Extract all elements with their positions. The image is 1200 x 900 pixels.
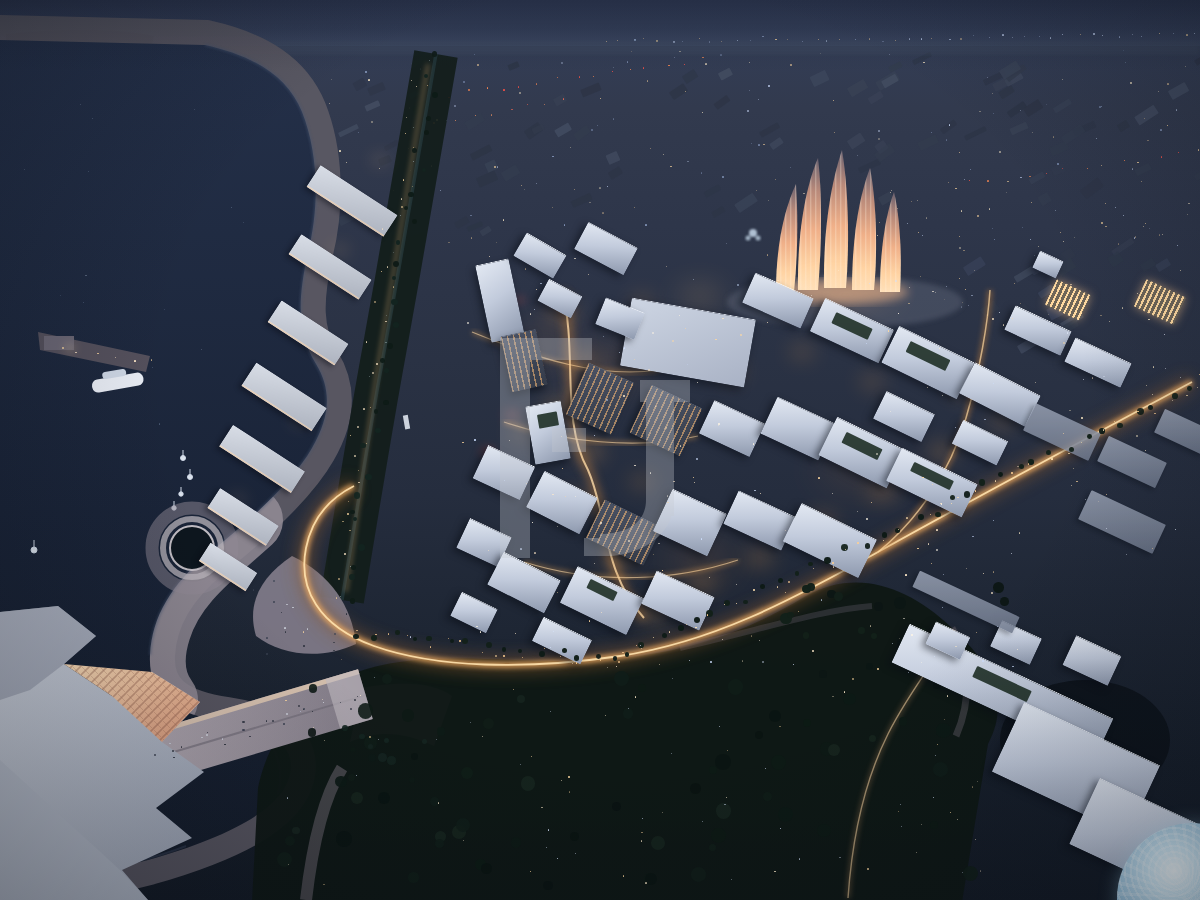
promenade-light xyxy=(354,455,356,457)
park-light xyxy=(300,711,301,712)
district-window-light xyxy=(767,254,768,255)
park-tree xyxy=(651,836,665,850)
street-glow xyxy=(498,407,526,423)
park-light xyxy=(550,647,551,648)
park-light xyxy=(972,786,973,787)
ne-window-light xyxy=(1164,334,1165,335)
district-layer xyxy=(0,0,1200,900)
canal-tree xyxy=(424,74,428,78)
street-glow xyxy=(620,470,664,494)
canal-light xyxy=(427,85,428,86)
promenade-light xyxy=(338,578,340,580)
district-window-light xyxy=(708,414,709,415)
park-light xyxy=(916,852,917,853)
shore-palm-grove xyxy=(387,756,395,764)
boulevard-palm-light xyxy=(975,490,977,492)
ne-window-light xyxy=(999,312,1000,313)
district-window-light xyxy=(525,268,526,269)
promenade-light xyxy=(350,435,351,436)
park-tree xyxy=(828,744,840,756)
district-window-light xyxy=(983,573,984,574)
park-tree xyxy=(638,684,646,692)
sea-sparkle xyxy=(231,207,232,208)
park-light xyxy=(671,753,672,754)
boulevard-palm-light xyxy=(1186,395,1187,396)
canal-tree xyxy=(422,168,427,173)
ne-window-light xyxy=(1003,324,1004,325)
canal-tree xyxy=(380,358,385,363)
district-window-light xyxy=(737,284,739,286)
ne-window-light xyxy=(1020,303,1021,304)
canal-light xyxy=(400,215,401,216)
plaza-person xyxy=(253,589,255,591)
loop-palm xyxy=(450,639,454,643)
boulevard-palm xyxy=(882,532,887,537)
district-window-light xyxy=(672,340,674,342)
park-light xyxy=(561,780,562,781)
district-window-light xyxy=(600,522,602,524)
district-window-light xyxy=(982,660,984,662)
park-tree xyxy=(755,731,763,739)
park-tree xyxy=(819,670,827,678)
promenade-light xyxy=(363,408,365,410)
park-tree xyxy=(690,783,701,794)
canal-tree xyxy=(393,322,399,328)
district-window-light xyxy=(594,435,595,436)
district-window-light xyxy=(696,458,697,459)
park-tree xyxy=(309,684,318,693)
boulevard-palm-light xyxy=(653,637,654,638)
district-window-light xyxy=(540,283,542,285)
canal-light xyxy=(393,286,394,287)
canal-light xyxy=(369,376,370,377)
park-light xyxy=(702,821,703,822)
district-window-light xyxy=(838,270,839,271)
park-light xyxy=(303,631,305,633)
bridge-person xyxy=(206,734,208,736)
park-light xyxy=(867,868,868,869)
boulevard-palm xyxy=(1187,386,1192,391)
ne-window-light xyxy=(1152,548,1153,549)
park-tree xyxy=(843,693,856,706)
boulevard-palm xyxy=(998,472,1003,477)
park-tree xyxy=(869,735,876,742)
canal-light xyxy=(349,530,350,531)
district-window-light xyxy=(927,387,928,388)
ne-window-light xyxy=(1145,450,1146,451)
park-tree xyxy=(993,582,1004,593)
bridge-person xyxy=(312,711,314,713)
district-window-light xyxy=(628,540,630,542)
park-tree xyxy=(778,807,793,822)
park-light xyxy=(548,829,549,830)
district-window-light xyxy=(534,552,536,554)
district-window-light xyxy=(903,618,904,619)
park-tree xyxy=(351,792,363,804)
park-tree xyxy=(402,709,414,721)
boulevard-palm-light xyxy=(906,517,908,519)
bridge-person xyxy=(298,705,300,707)
promenade-light xyxy=(406,117,407,118)
canal-tree xyxy=(387,343,393,349)
sea-sparkle xyxy=(164,309,165,310)
district-window-light xyxy=(866,343,867,344)
loop-palm-light xyxy=(388,633,389,634)
park-light xyxy=(662,812,663,813)
park-tree xyxy=(408,872,418,882)
district-window-light xyxy=(467,322,469,324)
ne-window-light xyxy=(1126,554,1127,555)
bridge-person xyxy=(323,702,325,704)
boulevard-palm xyxy=(808,562,813,567)
park-light xyxy=(898,811,899,812)
canal-tree xyxy=(374,409,378,413)
park-light xyxy=(642,818,643,819)
district-window-light xyxy=(607,667,608,668)
district-window-light xyxy=(821,599,822,600)
loop-palm-light xyxy=(356,630,358,632)
park-light xyxy=(726,797,727,798)
boulevard-palm xyxy=(950,495,955,500)
bridge-person xyxy=(272,720,274,722)
boulevard-palm xyxy=(795,571,800,576)
canal-tree xyxy=(404,206,408,210)
park-light xyxy=(780,828,781,829)
ne-window-light xyxy=(1136,435,1138,437)
district-window-light xyxy=(911,634,913,636)
park-tree xyxy=(481,863,492,874)
park-tree xyxy=(933,762,948,777)
district-window-light xyxy=(833,566,834,567)
park-light xyxy=(515,633,516,634)
loop-palm xyxy=(486,642,492,648)
canal-light xyxy=(429,60,430,61)
promenade-light xyxy=(342,521,344,523)
boulevard-palm-light xyxy=(1154,413,1156,415)
ne-window-light xyxy=(1153,366,1154,367)
boulevard-palm xyxy=(935,512,940,517)
district-window-light xyxy=(760,493,761,494)
canal-tree xyxy=(426,116,431,121)
boulevard-palm-light xyxy=(736,603,737,604)
boulevard-palm xyxy=(694,617,700,623)
shore-palm-grove xyxy=(359,734,364,739)
loop-palm xyxy=(395,630,400,635)
bridge-person xyxy=(242,729,244,731)
district-window-light xyxy=(785,592,786,593)
boulevard-palm xyxy=(1172,393,1178,399)
marina-light xyxy=(134,360,136,362)
park-light xyxy=(513,689,514,690)
boulevard-palm-light xyxy=(669,631,670,632)
district-window-light xyxy=(931,563,932,564)
park-tree xyxy=(358,703,374,719)
boulevard-palm xyxy=(824,557,831,564)
sea-sparkle xyxy=(24,169,25,170)
boulevard-palm-light xyxy=(1114,421,1115,422)
park-light xyxy=(950,812,952,814)
district-window-light xyxy=(520,548,522,550)
district-window-light xyxy=(898,313,899,314)
district-window-light xyxy=(530,313,531,314)
promenade-light xyxy=(374,301,375,302)
park-tree xyxy=(787,612,793,618)
loop-palm xyxy=(353,634,358,639)
district-window-light xyxy=(659,664,660,665)
boulevard-palm-light xyxy=(1011,472,1013,474)
district-building xyxy=(487,551,561,613)
boulevard-palm-light xyxy=(857,542,858,543)
ne-window-light xyxy=(1069,410,1070,411)
park-light xyxy=(572,663,573,664)
district-building xyxy=(1064,337,1132,388)
boulevard-palm xyxy=(979,479,986,486)
park-light xyxy=(557,858,558,859)
park-light xyxy=(287,797,288,798)
district-building xyxy=(526,471,598,535)
park-tree xyxy=(691,867,706,882)
canal-tree xyxy=(375,428,381,434)
park-light xyxy=(623,875,624,876)
park-light xyxy=(482,736,483,737)
park-tree xyxy=(769,710,781,722)
park-tree xyxy=(709,844,716,851)
park-tree xyxy=(614,671,629,686)
park-light xyxy=(779,726,780,727)
district-window-light xyxy=(476,626,478,628)
ne-window-light xyxy=(1063,342,1065,344)
district-building xyxy=(199,543,258,592)
district-window-light xyxy=(936,529,938,531)
park-light xyxy=(569,791,570,792)
sea-sparkle xyxy=(80,104,81,105)
marina-light xyxy=(151,359,153,361)
sea-sparkle xyxy=(159,423,160,424)
bridge-person xyxy=(354,699,356,701)
canal-tree xyxy=(360,443,366,449)
park-light xyxy=(530,871,531,872)
district-window-light xyxy=(462,442,464,444)
boulevard-palm-light xyxy=(636,645,637,646)
park-light xyxy=(908,672,909,673)
boulevard-palm-light xyxy=(1166,395,1167,396)
boulevard-palm-light xyxy=(951,503,952,504)
promenade-light xyxy=(366,341,368,343)
canal-tree xyxy=(432,92,438,98)
boulevard-palm-light xyxy=(930,514,931,515)
park-tree xyxy=(336,831,352,847)
park-light xyxy=(832,696,833,697)
park-tree xyxy=(930,821,938,829)
park-tree xyxy=(308,728,316,736)
district-window-light xyxy=(710,661,712,663)
ne-window-light xyxy=(1175,529,1176,530)
park-light xyxy=(957,819,958,820)
park-light xyxy=(793,664,794,665)
district-window-light xyxy=(655,406,656,407)
ne-window-light xyxy=(1071,485,1072,486)
district-building xyxy=(219,425,305,494)
plaza-person xyxy=(284,627,286,629)
promenade-light xyxy=(357,426,359,428)
park-tree xyxy=(716,803,732,819)
boulevard-palm xyxy=(625,652,630,657)
park-tree xyxy=(894,597,906,609)
bridge-person xyxy=(283,723,285,725)
ne-window-light xyxy=(1197,387,1198,388)
ne-window-light xyxy=(1109,321,1110,322)
park-light xyxy=(976,632,977,633)
boulevard-palm-light xyxy=(622,652,623,653)
district-window-light xyxy=(709,577,710,578)
park-light xyxy=(378,739,380,741)
district-window-light xyxy=(575,496,576,497)
district-window-light xyxy=(480,631,481,632)
ne-window-light xyxy=(1083,379,1084,380)
park-light xyxy=(937,744,938,745)
canal-light xyxy=(348,501,349,502)
district-building xyxy=(306,165,397,237)
bridge-person xyxy=(249,736,250,737)
canal-light xyxy=(340,596,341,597)
park-tree xyxy=(461,767,473,779)
boulevard-palm xyxy=(1117,423,1123,429)
sea-sparkle xyxy=(194,109,195,110)
district-window-light xyxy=(634,465,636,467)
district-window-light xyxy=(694,482,695,483)
boulevard-palm-light xyxy=(813,568,814,569)
park-light xyxy=(844,691,845,692)
district-window-light xyxy=(759,640,760,641)
district-window-light xyxy=(666,266,667,267)
district-window-light xyxy=(652,332,654,334)
district-building xyxy=(1032,250,1064,278)
plaza-person xyxy=(285,631,286,632)
park-light xyxy=(975,839,976,840)
park-tree xyxy=(411,753,418,760)
canal-tree xyxy=(350,598,355,603)
park-light xyxy=(463,840,464,841)
park-tree xyxy=(834,592,843,601)
ne-window-light xyxy=(1106,528,1107,529)
canal-light xyxy=(413,127,414,128)
district-window-light xyxy=(588,274,589,275)
park-tree xyxy=(285,836,295,846)
promenade-light xyxy=(358,482,360,484)
park-light xyxy=(285,700,286,701)
park-light xyxy=(765,768,766,769)
boulevard-palm xyxy=(662,633,667,638)
plaza-person xyxy=(273,580,275,582)
loop-palm xyxy=(371,635,377,641)
park-light xyxy=(947,695,949,697)
district-building xyxy=(513,232,566,278)
canal-light xyxy=(393,252,394,253)
district-window-light xyxy=(972,536,974,538)
boulevard-palm xyxy=(778,578,783,583)
sea-sparkle xyxy=(152,367,153,368)
bridge-person xyxy=(340,702,342,704)
district-window-light xyxy=(877,668,879,670)
canal-tree xyxy=(393,261,399,267)
canal-light xyxy=(412,186,413,187)
loop-palm-light xyxy=(600,659,601,660)
district-window-light xyxy=(890,411,891,412)
park-light xyxy=(774,871,776,873)
bridge-person xyxy=(266,720,267,721)
canal-tree xyxy=(424,130,429,135)
park-light xyxy=(369,736,371,738)
ne-window-light xyxy=(1012,318,1013,319)
promenade-light xyxy=(403,179,404,180)
loop-palm-light xyxy=(448,638,449,639)
boulevard-palm-light xyxy=(832,562,833,563)
park-light xyxy=(374,677,375,678)
park-light xyxy=(341,659,342,660)
district-window-light xyxy=(866,518,868,520)
park-light xyxy=(672,678,673,679)
boulevard-palm xyxy=(1148,405,1154,411)
district-building xyxy=(1097,436,1167,488)
street-glow xyxy=(780,340,824,364)
canal-tree xyxy=(384,368,388,372)
district-window-light xyxy=(955,427,956,428)
shore-palm-grove xyxy=(384,738,389,743)
plaza-person xyxy=(266,653,268,655)
loop-palm-light xyxy=(522,657,523,658)
boulevard-palm xyxy=(964,491,970,497)
sea-sparkle xyxy=(201,349,202,350)
park-tree xyxy=(277,852,292,867)
district-window-light xyxy=(936,549,938,551)
park-light xyxy=(323,884,325,886)
district-window-light xyxy=(474,439,476,441)
shore-palm-grove xyxy=(350,747,356,753)
sea-sparkle xyxy=(88,171,89,172)
district-window-light xyxy=(740,334,742,336)
canal-light xyxy=(385,342,386,343)
park-tree xyxy=(456,818,471,833)
park-tree xyxy=(709,766,718,775)
park-tree xyxy=(771,755,787,771)
street-glow xyxy=(364,150,396,170)
ne-window-light xyxy=(1137,293,1138,294)
park-light xyxy=(722,639,723,640)
boulevard-palm-light xyxy=(753,589,755,591)
park-light xyxy=(899,638,900,639)
boulevard-palm-light xyxy=(883,540,884,541)
park-tree xyxy=(623,708,634,719)
park-tree xyxy=(858,627,864,633)
park-tree xyxy=(483,718,494,729)
park-light xyxy=(935,755,936,756)
plaza-person xyxy=(281,612,282,613)
park-light xyxy=(356,775,357,776)
park-light xyxy=(977,781,978,782)
park-tree xyxy=(963,866,978,881)
park-light xyxy=(921,824,922,825)
canal-tree xyxy=(353,517,357,521)
promenade-light xyxy=(387,266,388,267)
ne-window-light xyxy=(1152,394,1153,395)
park-tree xyxy=(711,828,726,843)
district-window-light xyxy=(754,490,756,492)
plaza-person xyxy=(307,628,309,630)
promenade-light xyxy=(385,321,387,323)
boulevard-palm-light xyxy=(1051,458,1052,459)
park-tree xyxy=(803,632,810,639)
park-tree xyxy=(517,695,525,703)
